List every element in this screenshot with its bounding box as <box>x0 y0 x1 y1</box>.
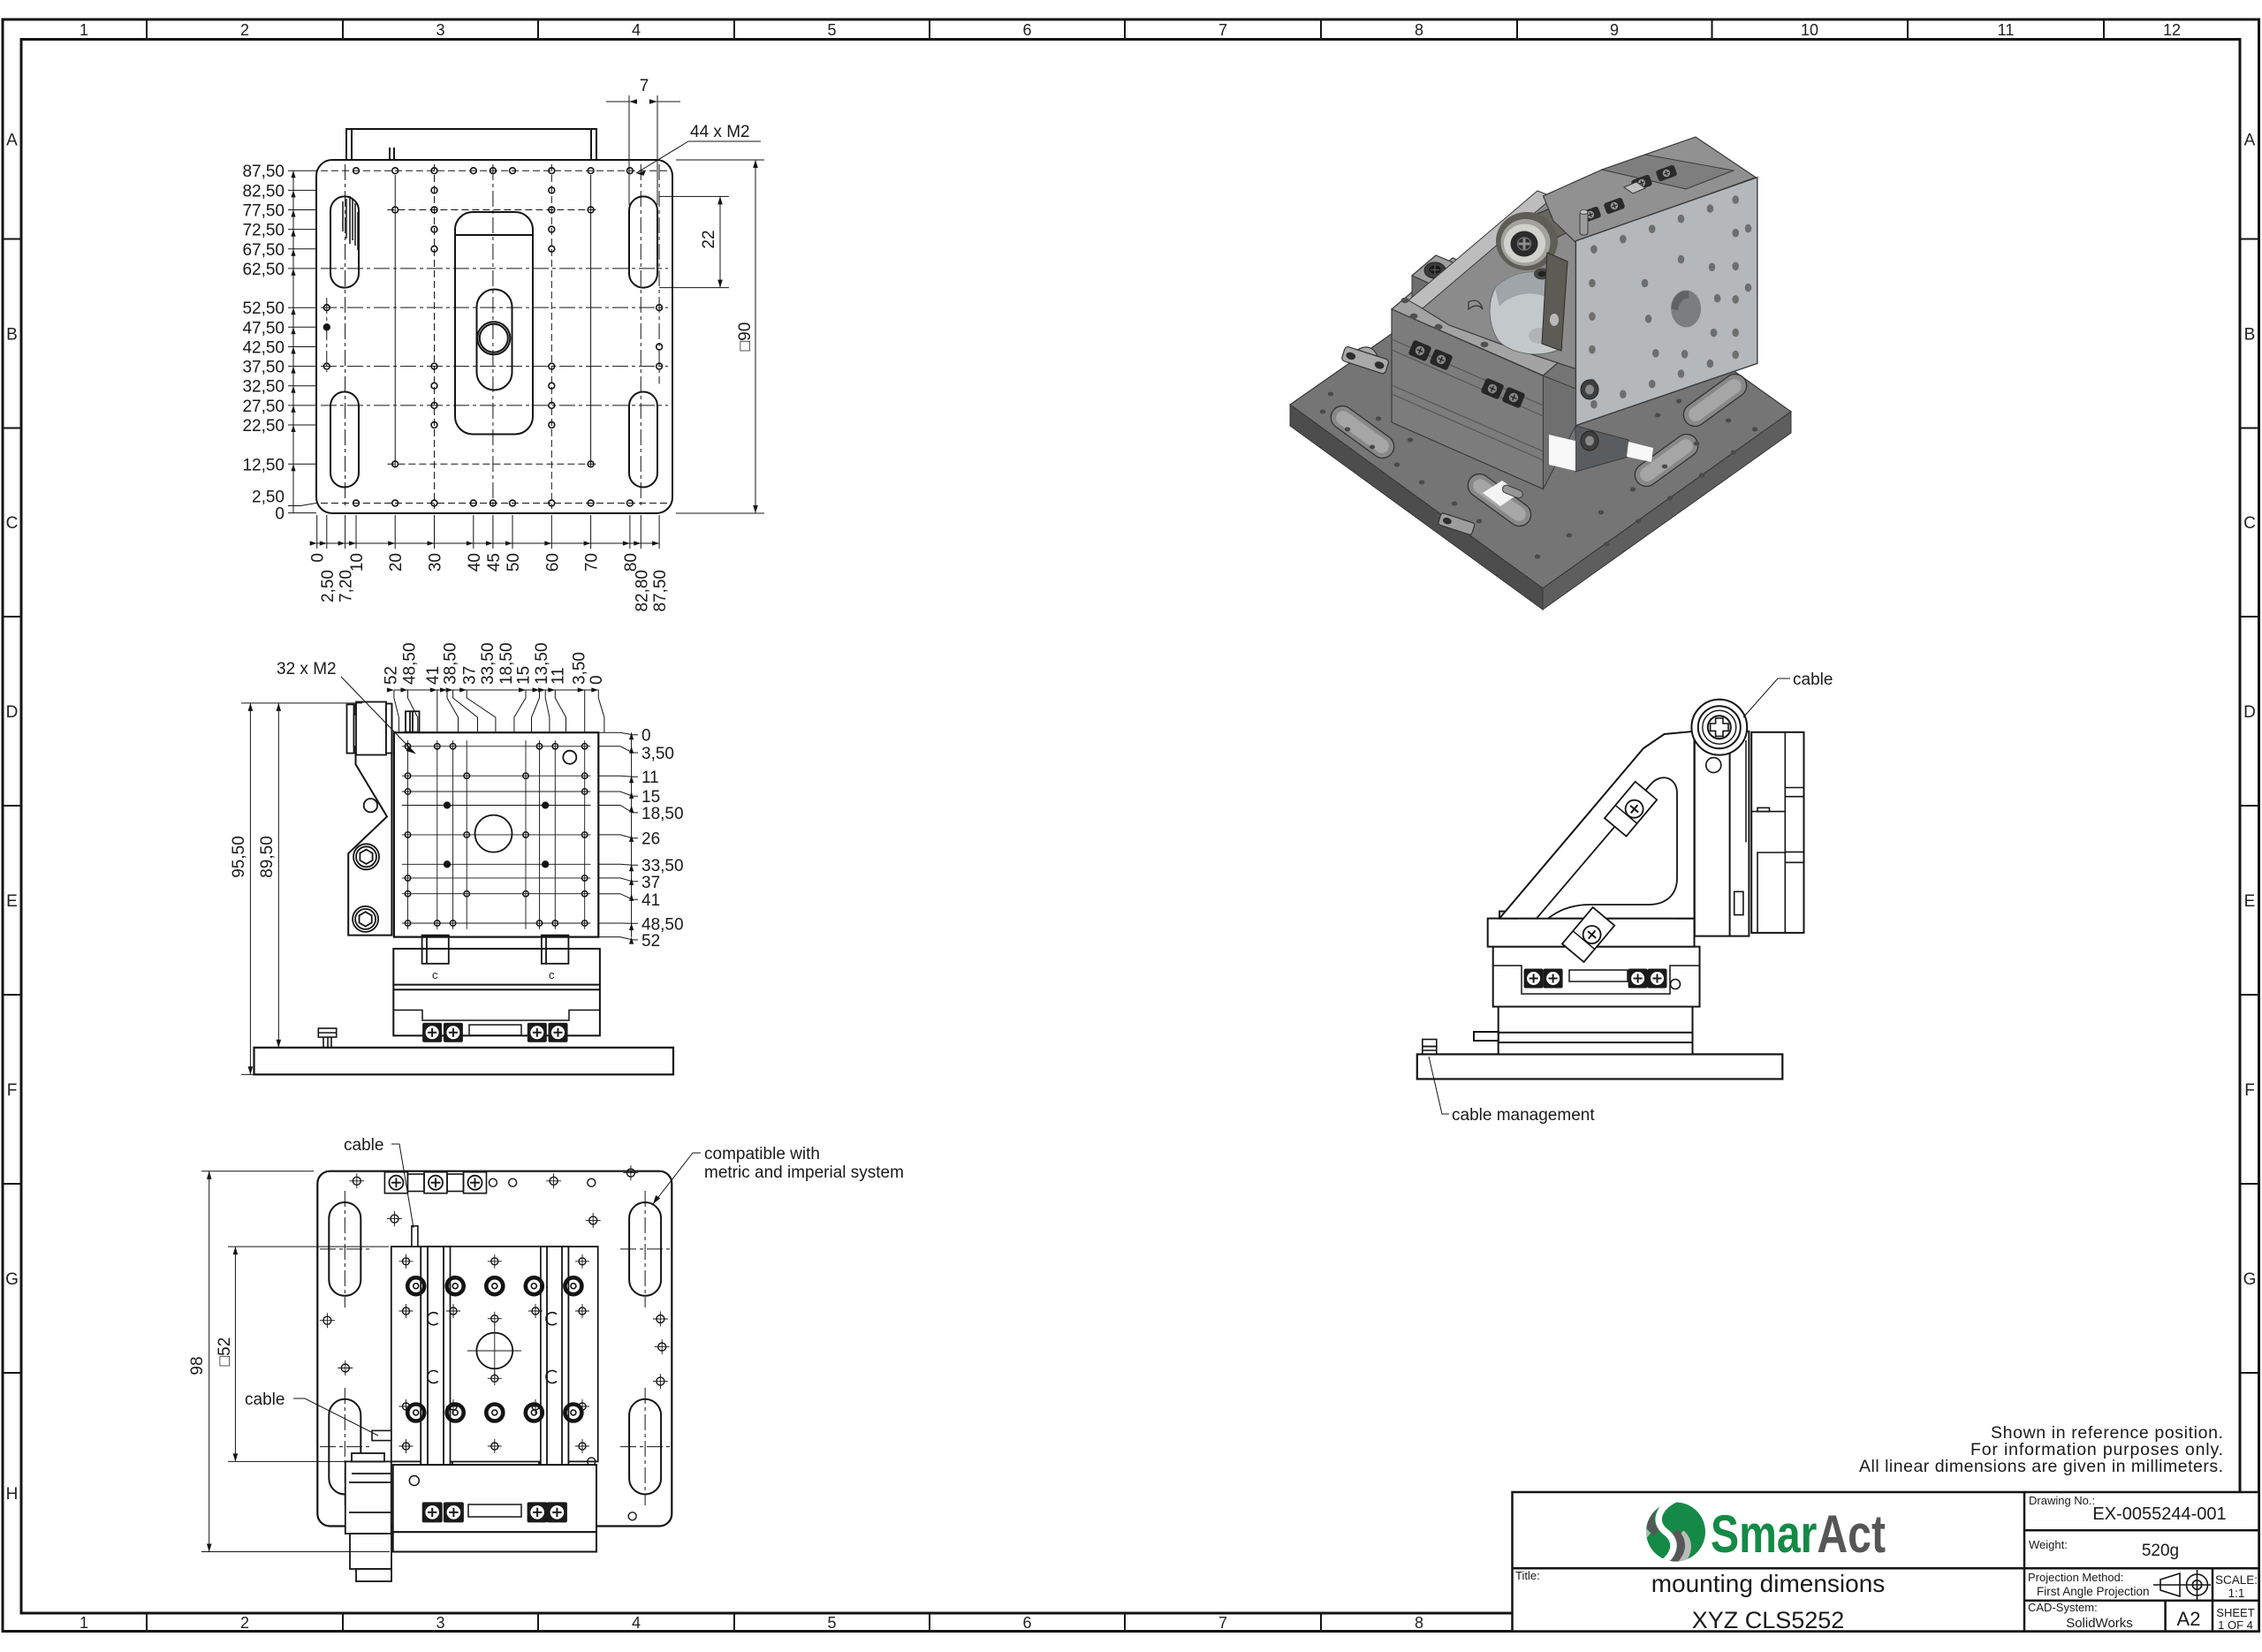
svg-text:37: 37 <box>461 666 480 685</box>
svg-text:F: F <box>7 1081 18 1100</box>
svg-text:32,50: 32,50 <box>242 378 285 397</box>
svg-text:18,50: 18,50 <box>497 642 516 685</box>
svg-text:67,50: 67,50 <box>242 241 285 260</box>
svg-text:26: 26 <box>641 830 660 849</box>
svg-text:50: 50 <box>505 553 523 572</box>
svg-text:32 x M2: 32 x M2 <box>277 660 337 678</box>
svg-text:22: 22 <box>700 230 718 248</box>
svg-text:33,50: 33,50 <box>479 642 497 685</box>
svg-text:C: C <box>6 514 19 533</box>
svg-text:XYZ CLS5252: XYZ CLS5252 <box>1692 1607 1845 1633</box>
svg-text:7: 7 <box>640 77 649 95</box>
svg-text:82,80: 82,80 <box>633 570 651 612</box>
svg-text:0: 0 <box>275 505 285 524</box>
svg-text:F: F <box>2244 1081 2255 1100</box>
svg-text:3: 3 <box>436 1614 444 1632</box>
svg-text:45: 45 <box>485 553 504 572</box>
svg-text:22,50: 22,50 <box>242 417 285 436</box>
svg-text:52,50: 52,50 <box>242 299 285 318</box>
svg-text:All linear dimensions are give: All linear dimensions are given in milli… <box>1859 1457 2223 1476</box>
svg-text:cable: cable <box>1793 671 1833 689</box>
svg-text:EX-0055244-001: EX-0055244-001 <box>2092 1504 2226 1524</box>
svg-text:B: B <box>6 326 18 345</box>
svg-text:c: c <box>549 968 555 981</box>
svg-text:11: 11 <box>641 769 659 787</box>
svg-text:G: G <box>5 1270 19 1289</box>
svg-text:4: 4 <box>632 1614 641 1632</box>
svg-text:70: 70 <box>583 553 602 572</box>
svg-text:37: 37 <box>641 874 660 892</box>
svg-text:0: 0 <box>588 675 606 685</box>
svg-text:89,50: 89,50 <box>258 836 277 878</box>
svg-text:72,50: 72,50 <box>242 222 285 240</box>
svg-text:87,50: 87,50 <box>242 163 285 181</box>
svg-text:2,50: 2,50 <box>319 570 338 602</box>
svg-text:c: c <box>432 968 438 981</box>
svg-text:8: 8 <box>1415 21 1423 39</box>
svg-text:0: 0 <box>641 727 651 746</box>
svg-text:13,50: 13,50 <box>533 642 551 685</box>
svg-text:SolidWorks: SolidWorks <box>2066 1616 2133 1631</box>
svg-text:77,50: 77,50 <box>242 202 285 221</box>
svg-text:2,50: 2,50 <box>252 489 285 507</box>
svg-text:6: 6 <box>1022 21 1031 39</box>
svg-text:8: 8 <box>1415 1614 1423 1632</box>
svg-text:7: 7 <box>1218 1614 1227 1632</box>
svg-text:41: 41 <box>641 891 660 910</box>
svg-text:C: C <box>2243 514 2256 533</box>
svg-text:87,50: 87,50 <box>651 570 670 612</box>
svg-text:6: 6 <box>1022 1614 1031 1632</box>
svg-text:compatible with: compatible with <box>704 1145 820 1163</box>
svg-text:SHEET: SHEET <box>2216 1606 2254 1619</box>
svg-text:62,50: 62,50 <box>242 261 285 279</box>
svg-text:B: B <box>2244 326 2256 345</box>
svg-text:□52: □52 <box>216 1338 234 1367</box>
svg-text:metric and imperial system: metric and imperial system <box>704 1163 904 1182</box>
svg-text:1:1: 1:1 <box>2228 1587 2245 1600</box>
svg-text:Weight:: Weight: <box>2029 1538 2068 1551</box>
svg-text:48,50: 48,50 <box>401 642 420 685</box>
svg-text:0: 0 <box>309 553 328 563</box>
svg-text:27,50: 27,50 <box>242 398 285 416</box>
svg-text:1: 1 <box>80 21 88 39</box>
svg-text:7: 7 <box>1218 21 1227 39</box>
svg-text:D: D <box>6 703 19 722</box>
svg-text:SCALE:: SCALE: <box>2215 1573 2258 1587</box>
svg-text:7,20: 7,20 <box>338 570 356 602</box>
svg-text:First Angle Projection: First Angle Projection <box>2037 1585 2150 1598</box>
svg-text:11: 11 <box>1998 21 2015 39</box>
svg-text:E: E <box>6 892 18 911</box>
svg-text:44 x M2: 44 x M2 <box>690 123 750 141</box>
svg-text:98: 98 <box>188 1356 207 1375</box>
svg-text:12,50: 12,50 <box>242 456 285 474</box>
svg-text:10: 10 <box>348 553 367 572</box>
svg-text:2: 2 <box>240 1614 249 1632</box>
svg-text:CAD-System:: CAD-System: <box>2028 1601 2098 1614</box>
svg-text:cable management: cable management <box>1452 1106 1595 1125</box>
svg-text:9: 9 <box>1610 21 1619 39</box>
svg-text:A2: A2 <box>2177 1608 2201 1630</box>
svg-text:4: 4 <box>632 21 641 39</box>
svg-text:30: 30 <box>427 553 445 572</box>
svg-text:D: D <box>2243 703 2256 722</box>
svg-text:E: E <box>2244 892 2256 911</box>
svg-text:2: 2 <box>240 21 249 39</box>
svg-text:37,50: 37,50 <box>242 359 285 377</box>
svg-text:1: 1 <box>80 1614 88 1632</box>
svg-text:12: 12 <box>2163 21 2181 39</box>
svg-text:Title:: Title: <box>1515 1569 1540 1582</box>
svg-text:H: H <box>6 1485 19 1504</box>
svg-text:SmarAct: SmarAct <box>1711 1504 1886 1564</box>
svg-text:3,50: 3,50 <box>641 745 674 763</box>
svg-text:3: 3 <box>436 21 444 39</box>
svg-text:11: 11 <box>550 667 568 685</box>
svg-text:1 OF 4: 1 OF 4 <box>2218 1618 2253 1632</box>
svg-text:5: 5 <box>827 1614 836 1632</box>
svg-text:cable: cable <box>245 1391 285 1409</box>
svg-text:A: A <box>6 132 18 150</box>
svg-text:□90: □90 <box>736 322 755 352</box>
svg-text:20: 20 <box>387 553 406 572</box>
svg-text:38,50: 38,50 <box>442 642 460 685</box>
svg-text:60: 60 <box>543 553 562 572</box>
svg-text:10: 10 <box>1801 21 1818 39</box>
svg-text:42,50: 42,50 <box>242 339 285 358</box>
svg-text:mounting dimensions: mounting dimensions <box>1651 1570 1886 1597</box>
svg-text:520g: 520g <box>2142 1542 2179 1560</box>
svg-text:5: 5 <box>827 21 836 39</box>
svg-text:cable: cable <box>344 1136 383 1155</box>
svg-text:95,50: 95,50 <box>230 836 248 878</box>
svg-text:G: G <box>2243 1270 2257 1289</box>
svg-text:52: 52 <box>641 932 660 951</box>
svg-text:41: 41 <box>424 666 443 685</box>
svg-text:40: 40 <box>466 553 484 572</box>
svg-text:Projection Method:: Projection Method: <box>2028 1571 2123 1584</box>
svg-text:3,50: 3,50 <box>570 652 588 685</box>
svg-text:52: 52 <box>382 666 400 685</box>
svg-text:47,50: 47,50 <box>242 319 285 337</box>
svg-text:18,50: 18,50 <box>641 805 684 823</box>
svg-text:Drawing No.:: Drawing No.: <box>2029 1494 2095 1507</box>
svg-text:A: A <box>2244 132 2256 150</box>
svg-text:15: 15 <box>515 666 534 685</box>
svg-text:82,50: 82,50 <box>242 182 285 201</box>
svg-text:80: 80 <box>622 553 641 572</box>
